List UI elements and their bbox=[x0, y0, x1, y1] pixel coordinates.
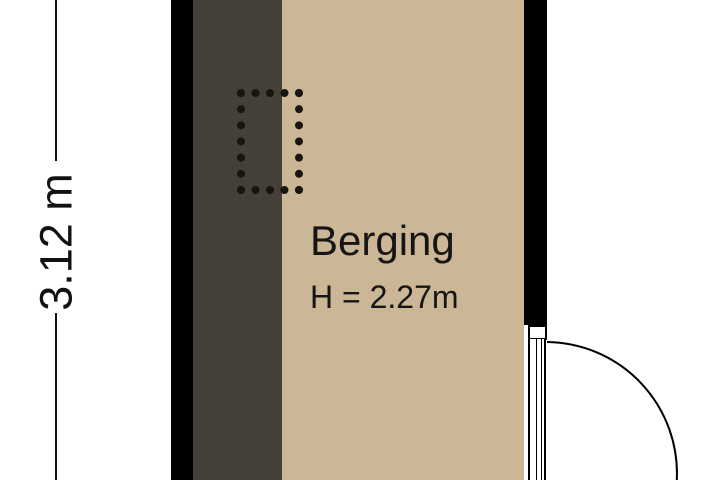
wall-right bbox=[524, 0, 547, 325]
door-leaf bbox=[528, 339, 546, 480]
door-jamb bbox=[528, 325, 547, 340]
dimension-line-lower-segment bbox=[55, 313, 57, 480]
door-leaf-line bbox=[541, 339, 543, 480]
dashed-outline-fixture bbox=[237, 89, 303, 194]
dimension-label: 3.12 m bbox=[34, 173, 79, 311]
door-leaf-line bbox=[536, 339, 538, 480]
wall-left bbox=[171, 0, 193, 480]
room-height-label: H = 2.27m bbox=[310, 281, 459, 313]
room-name-label: Berging bbox=[310, 220, 455, 262]
floor-zone-dark bbox=[193, 0, 282, 480]
floorplan-canvas: 3.12 m Berging H = 2.27m bbox=[0, 0, 720, 480]
dimension-line-upper-segment bbox=[55, 0, 57, 161]
